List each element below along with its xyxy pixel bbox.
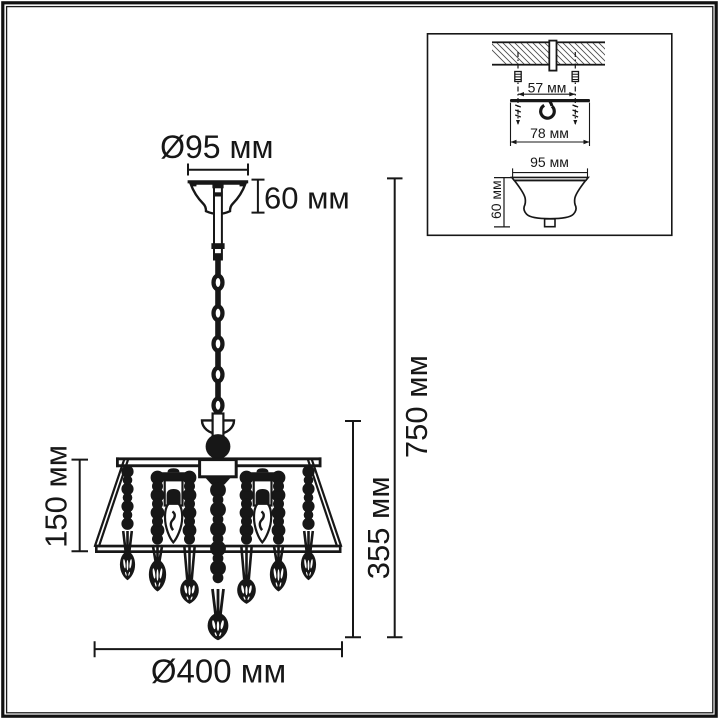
svg-text:60 мм: 60 мм <box>264 180 350 215</box>
svg-text:355 мм: 355 мм <box>361 476 396 579</box>
svg-text:78 мм: 78 мм <box>530 125 569 141</box>
svg-text:Ø400 мм: Ø400 мм <box>151 653 286 690</box>
svg-text:95 мм: 95 мм <box>530 154 569 170</box>
svg-text:57 мм: 57 мм <box>528 80 567 96</box>
svg-text:Ø95 мм: Ø95 мм <box>160 129 273 165</box>
svg-text:750 мм: 750 мм <box>399 355 434 458</box>
svg-text:150 мм: 150 мм <box>39 445 74 548</box>
svg-text:60 мм: 60 мм <box>488 180 504 219</box>
